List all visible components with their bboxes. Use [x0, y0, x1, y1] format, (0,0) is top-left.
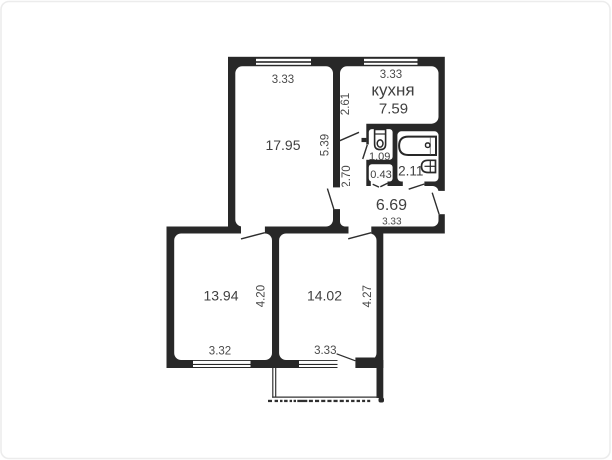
svg-text:2.11: 2.11 — [398, 164, 423, 179]
svg-text:3.33: 3.33 — [314, 345, 336, 357]
svg-text:кухня: кухня — [371, 81, 414, 100]
svg-text:6.69: 6.69 — [376, 197, 407, 214]
svg-text:3.33: 3.33 — [380, 69, 402, 81]
svg-text:2.61: 2.61 — [340, 93, 352, 115]
svg-text:13.94: 13.94 — [203, 288, 238, 304]
svg-text:4.27: 4.27 — [362, 285, 374, 307]
svg-text:14.02: 14.02 — [307, 288, 342, 304]
svg-text:7.59: 7.59 — [379, 101, 408, 118]
svg-text:2.70: 2.70 — [341, 165, 353, 187]
svg-text:5.39: 5.39 — [320, 134, 332, 156]
svg-text:17.95: 17.95 — [265, 137, 300, 153]
svg-text:0.43: 0.43 — [370, 169, 391, 181]
svg-text:3.33: 3.33 — [382, 217, 402, 228]
svg-text:4.20: 4.20 — [255, 285, 267, 307]
svg-text:3.32: 3.32 — [209, 346, 231, 358]
svg-text:3.33: 3.33 — [272, 74, 294, 86]
svg-text:1.09: 1.09 — [369, 151, 390, 163]
